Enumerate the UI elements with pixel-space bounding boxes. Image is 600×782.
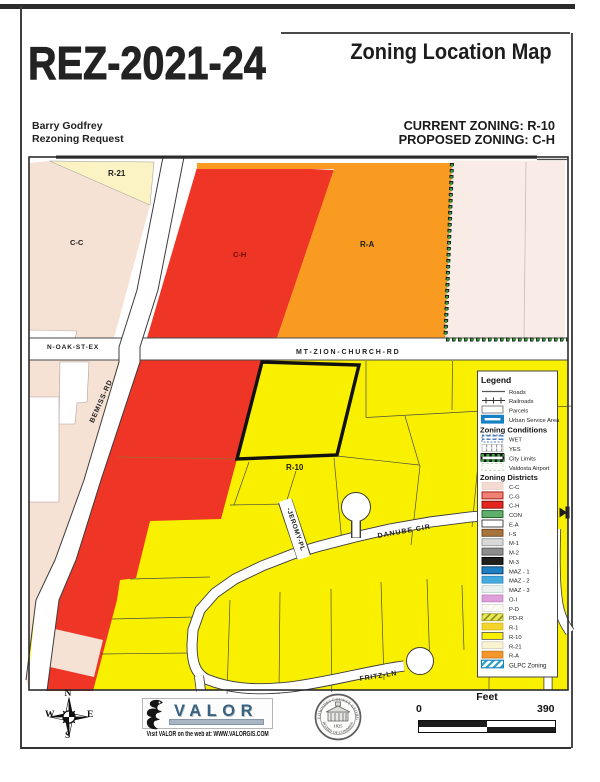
svg-text:R-21: R-21 xyxy=(509,644,522,650)
svg-text:PD-R: PD-R xyxy=(509,616,523,622)
svg-text:1825: 1825 xyxy=(334,724,344,729)
svg-text:C-H: C-H xyxy=(233,250,246,259)
svg-text:O-I: O-I xyxy=(509,597,517,603)
svg-text:C-G: C-G xyxy=(509,494,520,500)
svg-text:R-A: R-A xyxy=(360,240,374,249)
svg-text:Railroads: Railroads xyxy=(509,399,534,405)
svg-text:Zoning Districts: Zoning Districts xyxy=(480,473,538,482)
svg-text:WET: WET xyxy=(509,438,522,444)
svg-text:GLPC Zoning: GLPC Zoning xyxy=(509,662,547,669)
svg-text:MAZ - 2: MAZ - 2 xyxy=(509,579,530,585)
svg-text:MAZ - 1: MAZ - 1 xyxy=(509,569,530,575)
svg-text:M-1: M-1 xyxy=(509,541,519,547)
svg-text:P-D: P-D xyxy=(509,607,519,613)
svg-text:Zoning Conditions: Zoning Conditions xyxy=(480,426,547,435)
svg-text:N-OAK-ST-EX: N-OAK-ST-EX xyxy=(47,344,99,351)
svg-text:MT-ZION-CHURCH-RD: MT-ZION-CHURCH-RD xyxy=(296,349,400,356)
svg-text:Parcels: Parcels xyxy=(509,409,528,415)
svg-text:E-A: E-A xyxy=(509,523,519,529)
svg-text:YES: YES xyxy=(509,447,521,453)
svg-text:M-2: M-2 xyxy=(509,551,519,557)
svg-text:R-A: R-A xyxy=(509,654,519,660)
svg-text:M-3: M-3 xyxy=(509,560,519,566)
svg-text:Valdosta Airport: Valdosta Airport xyxy=(509,466,550,472)
svg-text:R-1: R-1 xyxy=(509,626,518,632)
svg-text:Urban Service Area: Urban Service Area xyxy=(509,418,560,424)
svg-text:MAZ - 3: MAZ - 3 xyxy=(509,588,530,594)
svg-text:C-H: C-H xyxy=(509,504,519,510)
svg-text:R-21: R-21 xyxy=(108,169,126,178)
svg-text:I-S: I-S xyxy=(509,532,517,538)
svg-text:CON: CON xyxy=(509,513,522,519)
svg-text:R-10: R-10 xyxy=(286,463,304,472)
svg-text:Roads: Roads xyxy=(509,390,526,396)
svg-text:City Limits: City Limits xyxy=(509,457,536,463)
svg-text:C-C: C-C xyxy=(70,238,84,247)
svg-text:R-10: R-10 xyxy=(509,635,522,641)
svg-text:Legend: Legend xyxy=(481,375,511,385)
svg-text:C-C: C-C xyxy=(509,485,519,491)
